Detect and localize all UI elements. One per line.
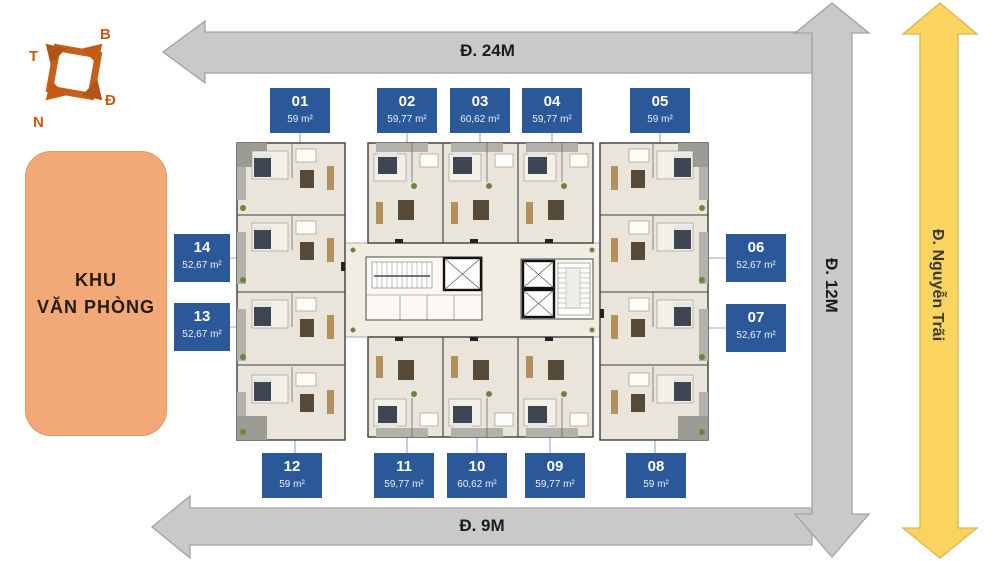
unit-label-10: 10 60,62 m² bbox=[447, 453, 507, 498]
unit-number: 04 bbox=[522, 92, 582, 111]
site-plan-page: B Đ N T Đ. 24M Đ. 9M Đ. 12M Đ. Nguyễn Tr… bbox=[0, 0, 1000, 561]
wing-right bbox=[600, 143, 708, 440]
unit-label-01: 01 59 m² bbox=[270, 88, 330, 133]
block-bottom bbox=[368, 337, 593, 437]
road-label-top: Đ. 24M bbox=[163, 41, 812, 61]
unit-area: 60,62 m² bbox=[447, 479, 507, 490]
unit-number: 05 bbox=[630, 92, 690, 111]
unit-label-07: 07 52,67 m² bbox=[726, 304, 786, 352]
unit-number: 01 bbox=[270, 92, 330, 111]
unit-area: 52,67 m² bbox=[174, 260, 230, 271]
unit-area: 59 m² bbox=[630, 114, 690, 125]
unit-area: 59 m² bbox=[262, 479, 322, 490]
unit-label-02: 02 59,77 m² bbox=[377, 88, 437, 133]
road-label-d12m: Đ. 12M bbox=[821, 195, 841, 375]
unit-label-03: 03 60,62 m² bbox=[450, 88, 510, 133]
core-right bbox=[521, 259, 593, 319]
unit-area: 52,67 m² bbox=[174, 329, 230, 340]
unit-area: 59 m² bbox=[270, 114, 330, 125]
unit-label-12: 12 59 m² bbox=[262, 453, 322, 498]
unit-number: 12 bbox=[262, 457, 322, 476]
wing-left bbox=[237, 143, 345, 440]
unit-label-08: 08 59 m² bbox=[626, 453, 686, 498]
block-top bbox=[368, 143, 593, 243]
compass-icon bbox=[38, 36, 110, 108]
unit-area: 59 m² bbox=[626, 479, 686, 490]
unit-number: 06 bbox=[726, 238, 786, 257]
floor-plan bbox=[237, 143, 708, 440]
unit-label-13: 13 52,67 m² bbox=[174, 303, 230, 351]
unit-label-04: 04 59,77 m² bbox=[522, 88, 582, 133]
unit-number: 14 bbox=[174, 238, 230, 257]
compass-west-label: T bbox=[29, 48, 38, 65]
unit-area: 59,77 m² bbox=[522, 114, 582, 125]
unit-number: 11 bbox=[374, 457, 434, 476]
unit-number: 08 bbox=[626, 457, 686, 476]
staircase-icon bbox=[558, 263, 590, 315]
unit-number: 09 bbox=[525, 457, 585, 476]
unit-area: 52,67 m² bbox=[726, 260, 786, 271]
unit-area: 59,77 m² bbox=[377, 114, 437, 125]
elevator-icon bbox=[523, 290, 554, 317]
road-label-bottom: Đ. 9M bbox=[152, 516, 812, 536]
unit-label-14: 14 52,67 m² bbox=[174, 234, 230, 282]
unit-number: 02 bbox=[377, 92, 437, 111]
compass-south-label: N bbox=[33, 114, 44, 131]
unit-label-11: 11 59,77 m² bbox=[374, 453, 434, 498]
unit-area: 52,67 m² bbox=[726, 330, 786, 341]
unit-label-06: 06 52,67 m² bbox=[726, 234, 786, 282]
core-left bbox=[366, 257, 482, 320]
unit-label-05: 05 59 m² bbox=[630, 88, 690, 133]
office-block: KHU VĂN PHÒNG bbox=[25, 151, 167, 436]
road-label-nguyen-trai: Đ. Nguyễn Trãi bbox=[928, 175, 946, 395]
office-label-line2: VĂN PHÒNG bbox=[37, 294, 155, 321]
unit-area: 60,62 m² bbox=[450, 114, 510, 125]
elevator-icon bbox=[444, 258, 481, 290]
unit-number: 13 bbox=[174, 307, 230, 326]
unit-label-09: 09 59,77 m² bbox=[525, 453, 585, 498]
elevator-icon bbox=[523, 261, 554, 288]
compass-east-label: Đ bbox=[105, 92, 116, 109]
unit-number: 03 bbox=[450, 92, 510, 111]
office-label-line1: KHU bbox=[75, 267, 117, 294]
compass-north-label: B bbox=[100, 26, 111, 43]
unit-area: 59,77 m² bbox=[525, 479, 585, 490]
unit-number: 10 bbox=[447, 457, 507, 476]
unit-number: 07 bbox=[726, 308, 786, 327]
unit-area: 59,77 m² bbox=[374, 479, 434, 490]
staircase-icon bbox=[372, 262, 432, 288]
